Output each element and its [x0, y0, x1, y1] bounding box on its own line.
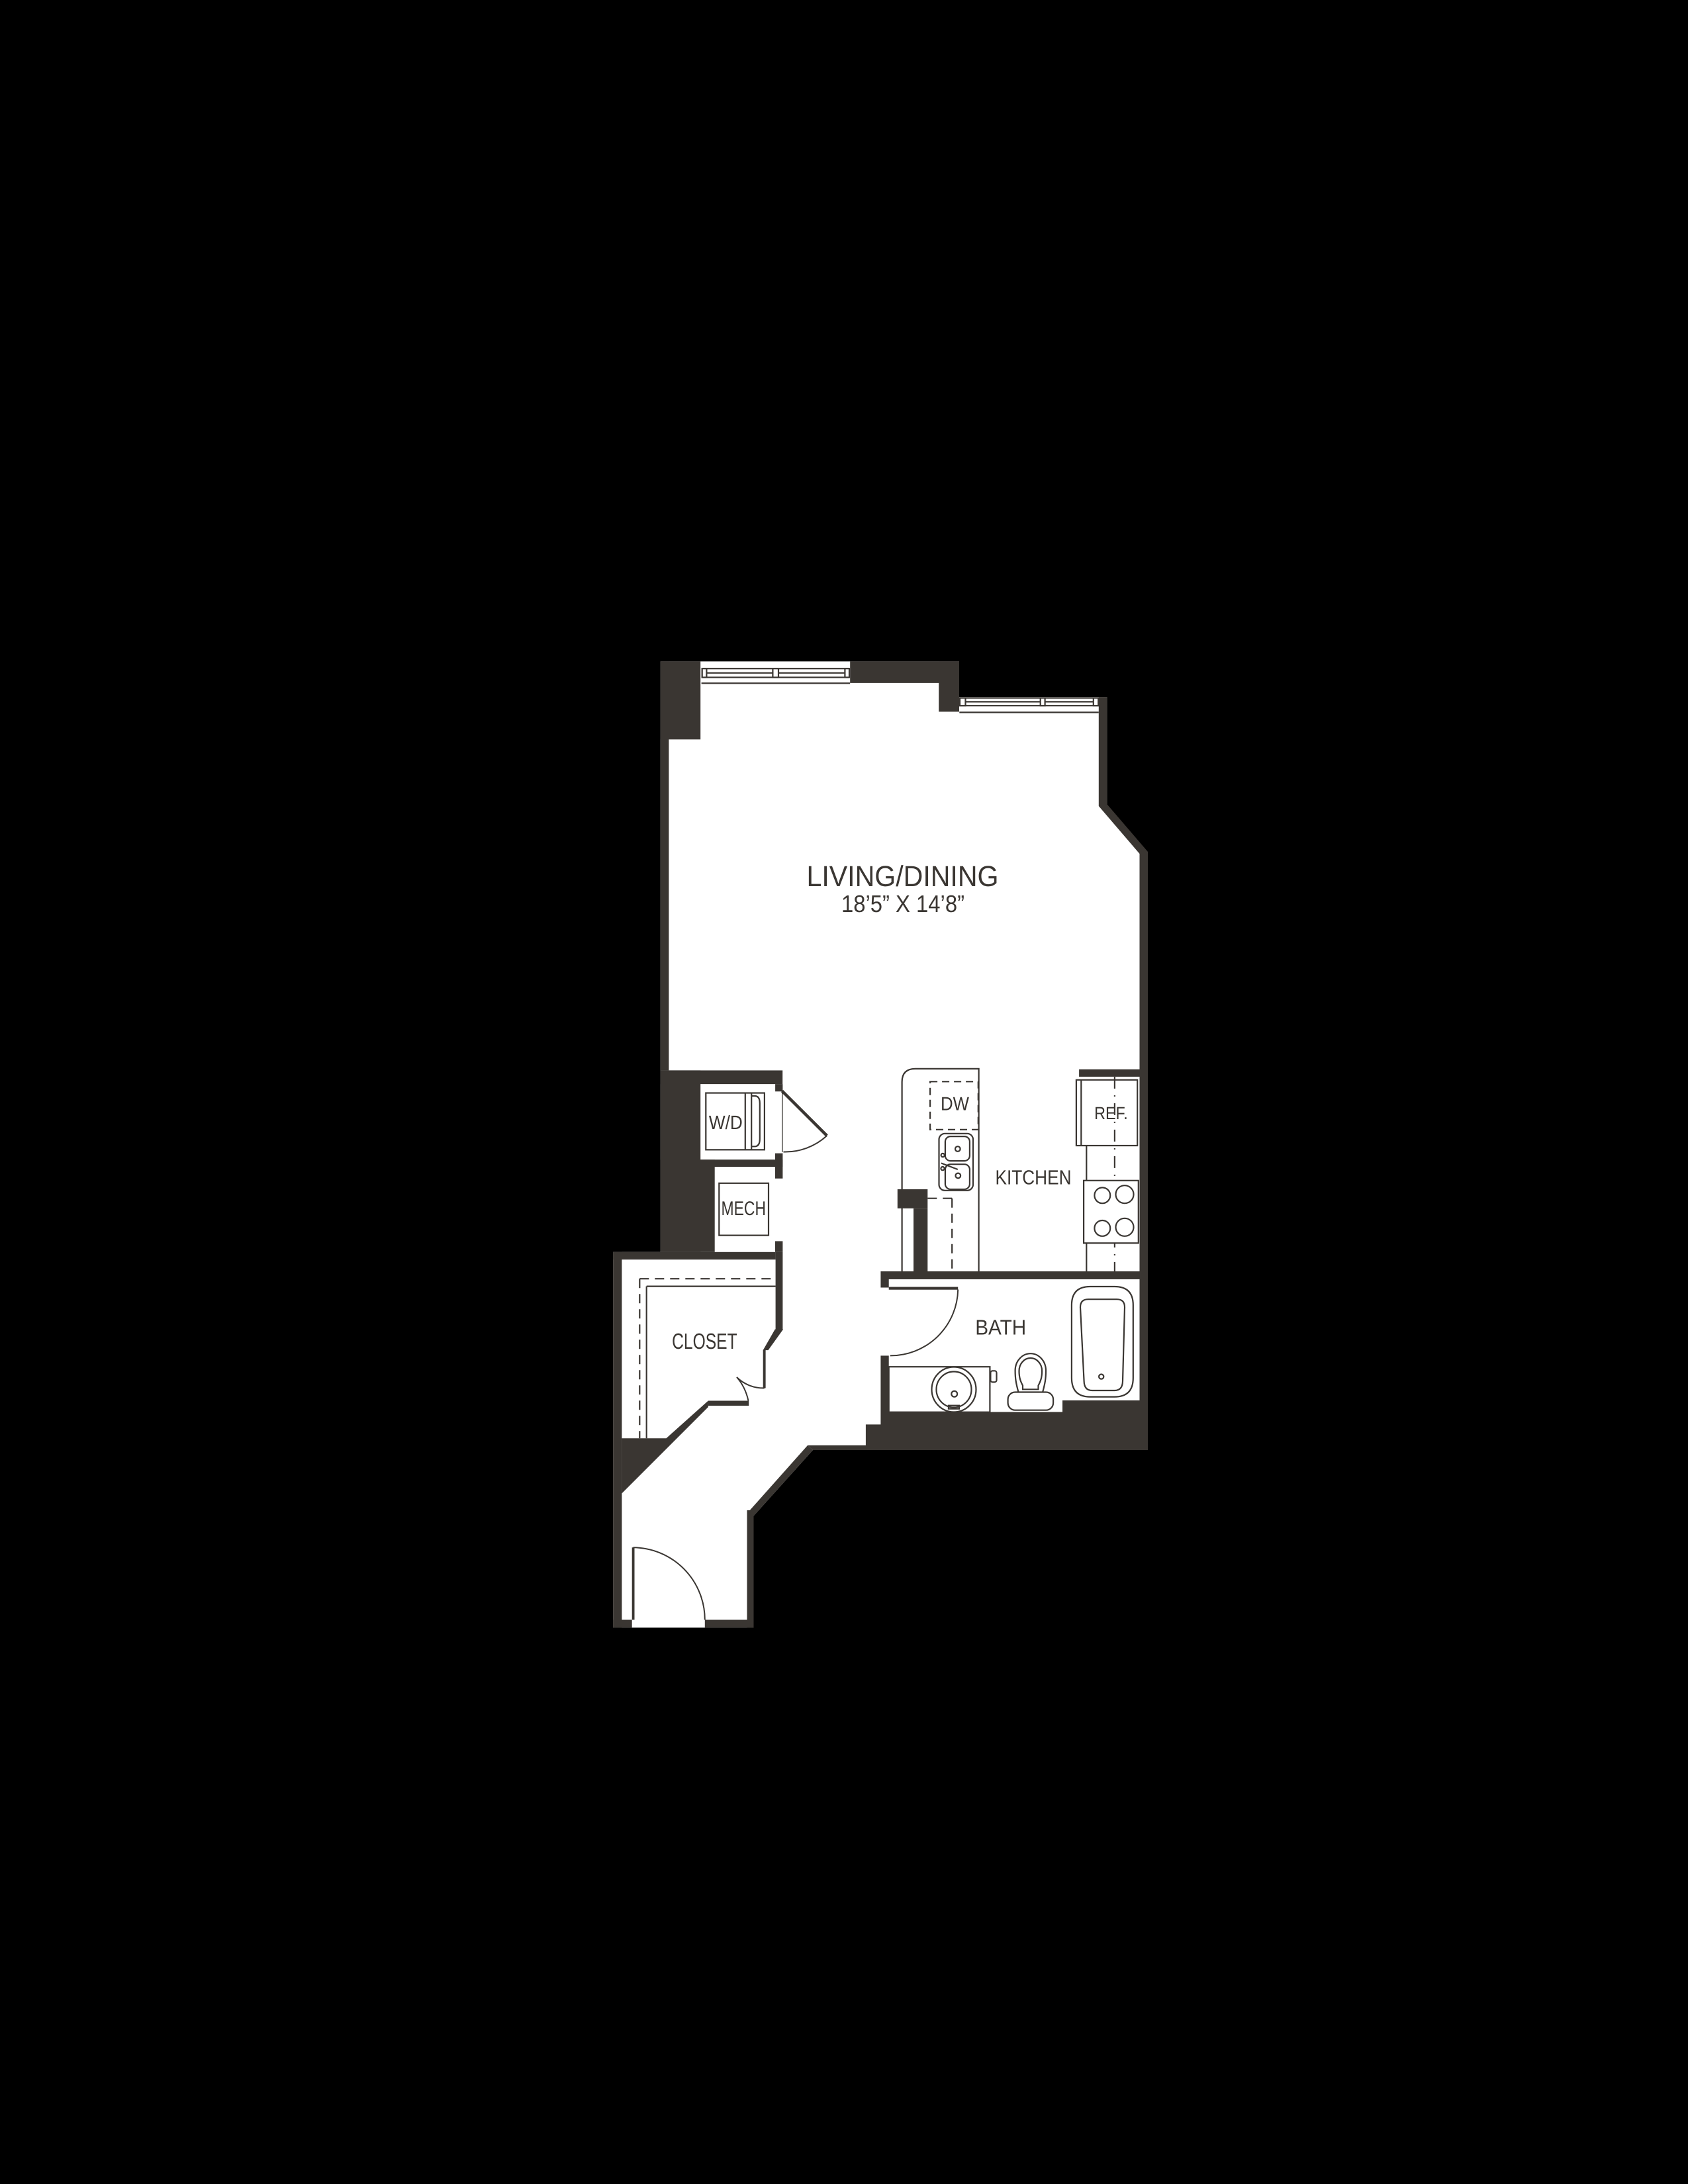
svg-text:REF.: REF. — [1094, 1103, 1128, 1123]
svg-text:KITCHEN: KITCHEN — [996, 1165, 1072, 1189]
svg-text:DW: DW — [941, 1094, 970, 1115]
svg-text:CLOSET: CLOSET — [672, 1330, 737, 1354]
svg-text:W/D: W/D — [709, 1113, 743, 1134]
svg-text:MECH: MECH — [722, 1198, 767, 1220]
svg-text:18’5” X 14’8”: 18’5” X 14’8” — [841, 890, 964, 917]
svg-text:BATH: BATH — [975, 1316, 1026, 1340]
svg-text:LIVING/DINING: LIVING/DINING — [807, 860, 999, 893]
